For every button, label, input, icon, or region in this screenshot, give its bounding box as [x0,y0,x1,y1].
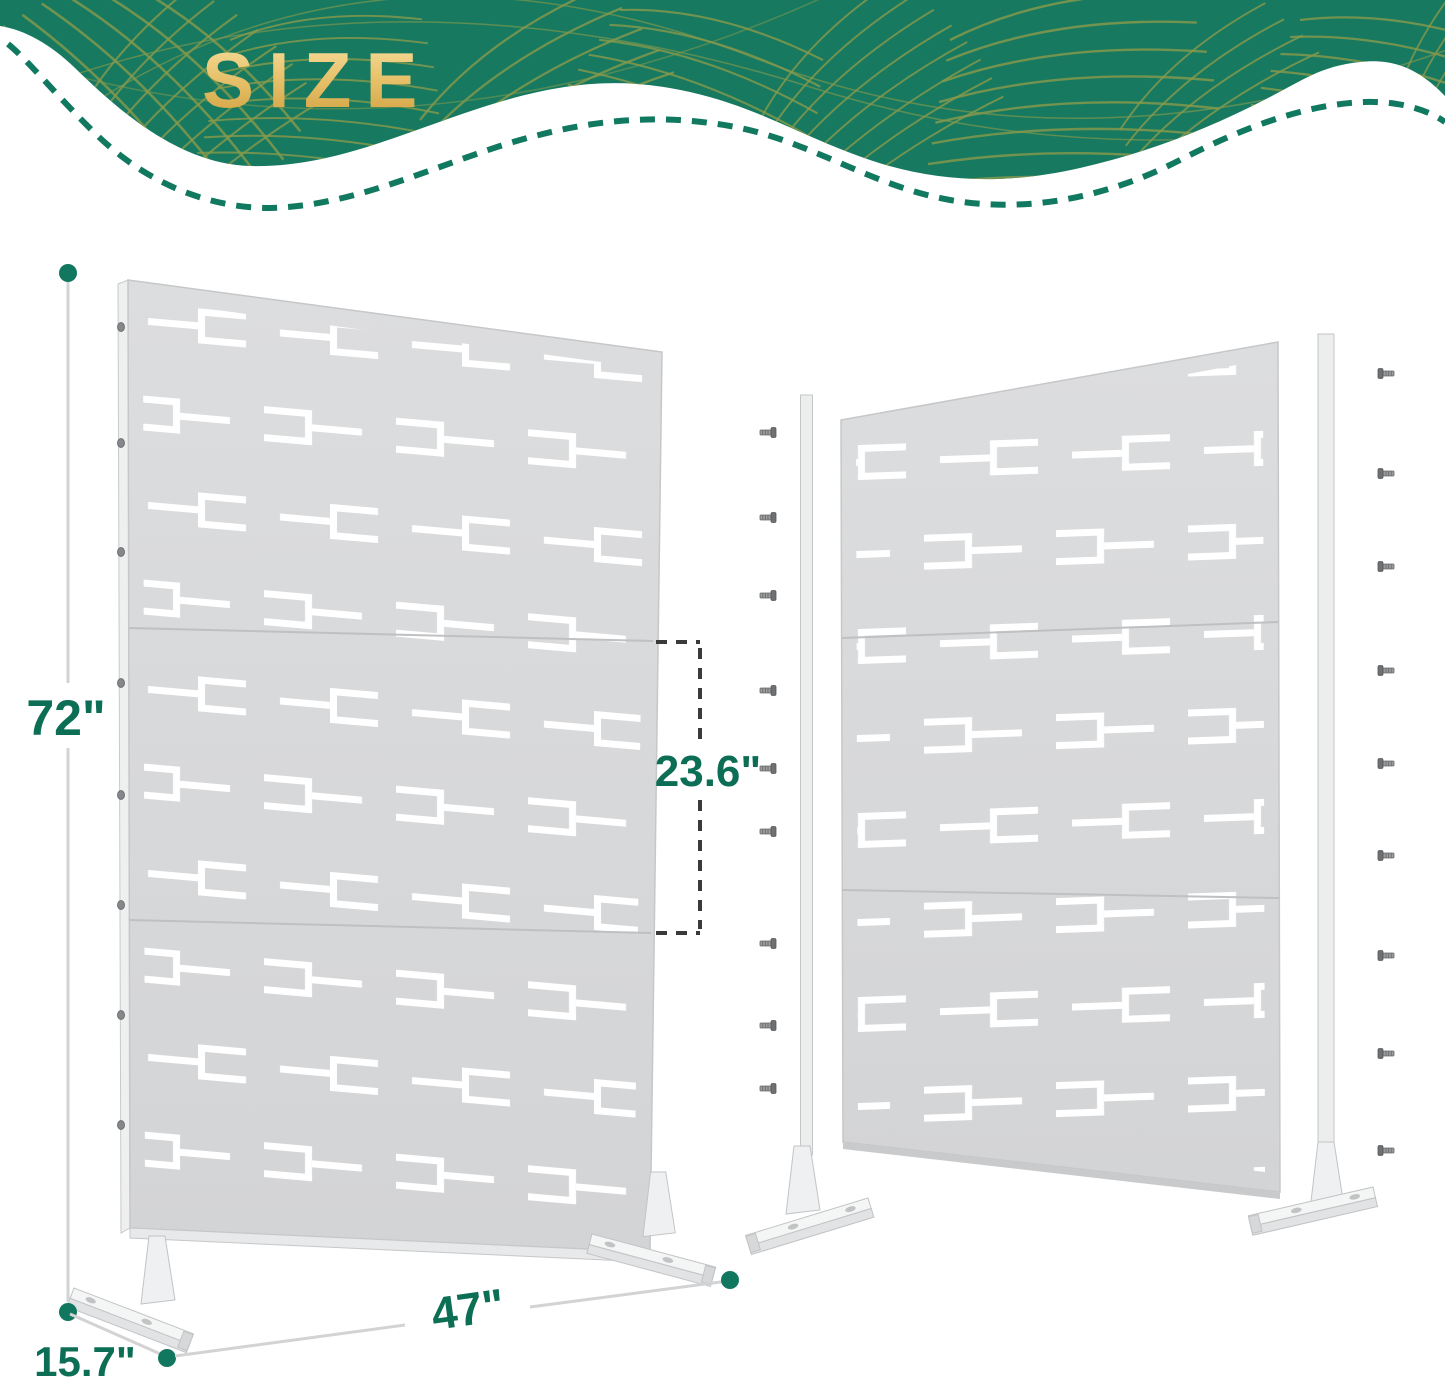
angled-panel-cutout-pattern [856,360,1265,1172]
screw-icon [760,1021,776,1031]
size-title: SIZE [202,36,431,124]
screw-icon [760,686,776,696]
screw-icon [118,439,125,448]
screw-icon [118,1011,125,1020]
screw-icon [1378,369,1394,379]
height-dimension: 72" [26,264,105,1321]
assembly-screws-left-column [760,428,776,1094]
angled-view-screen [746,334,1394,1255]
width-dimension-label: 47" [428,1278,508,1340]
screw-icon [118,901,125,910]
screw-icon [1378,562,1394,572]
dimension-endpoint-dot [721,1271,739,1289]
depth-dimension-label: 15.7" [34,1338,136,1379]
screw-icon [1378,1146,1394,1156]
stand-pole-left [801,395,813,1155]
screw-icon [118,791,125,800]
screw-icon [118,548,125,557]
panel-section-height-dimension: 23.6" [655,642,762,933]
screw-icon [760,428,776,438]
screw-icon [760,939,776,949]
screw-icon [1378,469,1394,479]
screw-icon [760,513,776,523]
size-specification-page: SIZE [0,0,1445,1379]
size-specification-diagram: SIZE [0,0,1445,1379]
stand-pole-right [1318,334,1334,1149]
screw-icon [1378,1049,1394,1059]
front-view-screen [67,280,716,1353]
screw-icon [118,1121,125,1130]
dimension-endpoint-dot [59,264,77,282]
dimension-endpoint-dot [59,1303,77,1321]
panel-section-height-label: 23.6" [655,747,762,796]
front-screen-left-foot [67,1236,194,1353]
screw-icon [1378,851,1394,861]
angled-screen-left-foot [746,1146,874,1255]
front-panel-cutout-pattern [143,300,645,1232]
screw-icon [760,764,776,774]
screw-icon [760,591,776,601]
screw-icon [1378,759,1394,769]
height-dimension-label: 72" [26,690,105,746]
banner: SIZE [0,0,1445,314]
dimension-endpoint-dot [158,1349,176,1367]
screw-icon [1378,666,1394,676]
screw-icon [760,827,776,837]
width-dimension: 47" [175,1271,739,1356]
screw-icon [118,679,125,688]
screw-icon [118,323,125,332]
assembly-screws-right-column [1378,369,1394,1156]
screw-icon [1378,951,1394,961]
screw-icon [760,1084,776,1094]
